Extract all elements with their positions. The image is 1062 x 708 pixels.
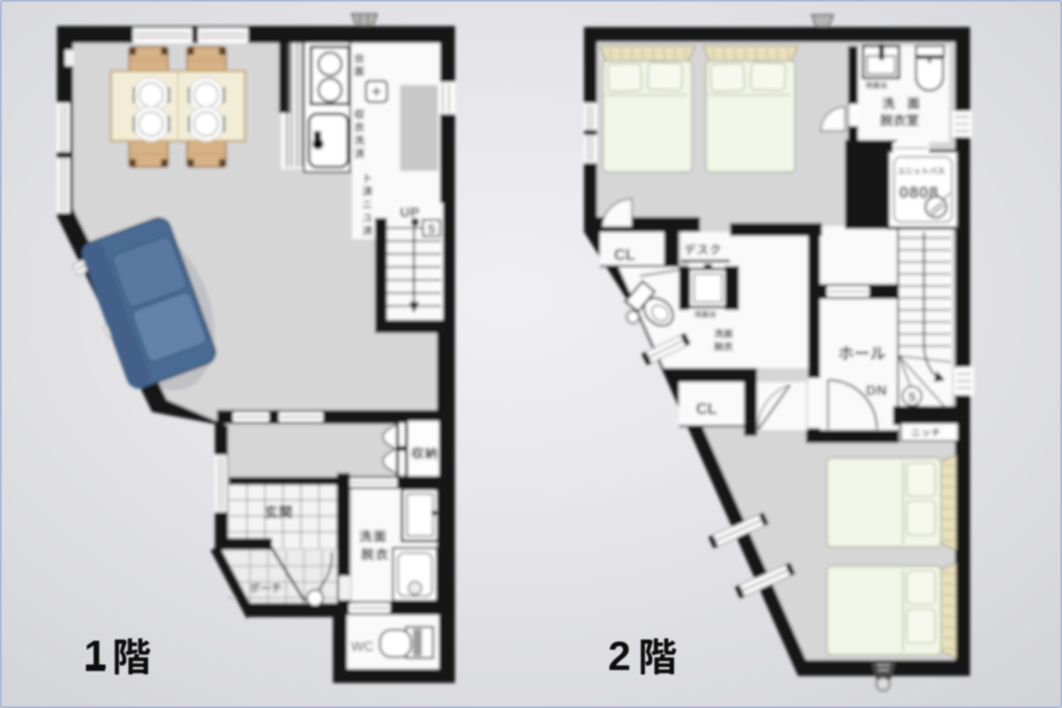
svg-text:WC: WC (351, 639, 374, 654)
svg-text:S: S (908, 390, 916, 404)
svg-text:UP: UP (400, 205, 420, 220)
svg-text:S: S (427, 222, 435, 236)
svg-text:CL: CL (614, 247, 636, 264)
svg-text:1: 1 (84, 632, 107, 678)
svg-text:2: 2 (608, 633, 631, 679)
svg-text:CL: CL (696, 401, 718, 418)
svg-text:DN: DN (866, 382, 887, 398)
